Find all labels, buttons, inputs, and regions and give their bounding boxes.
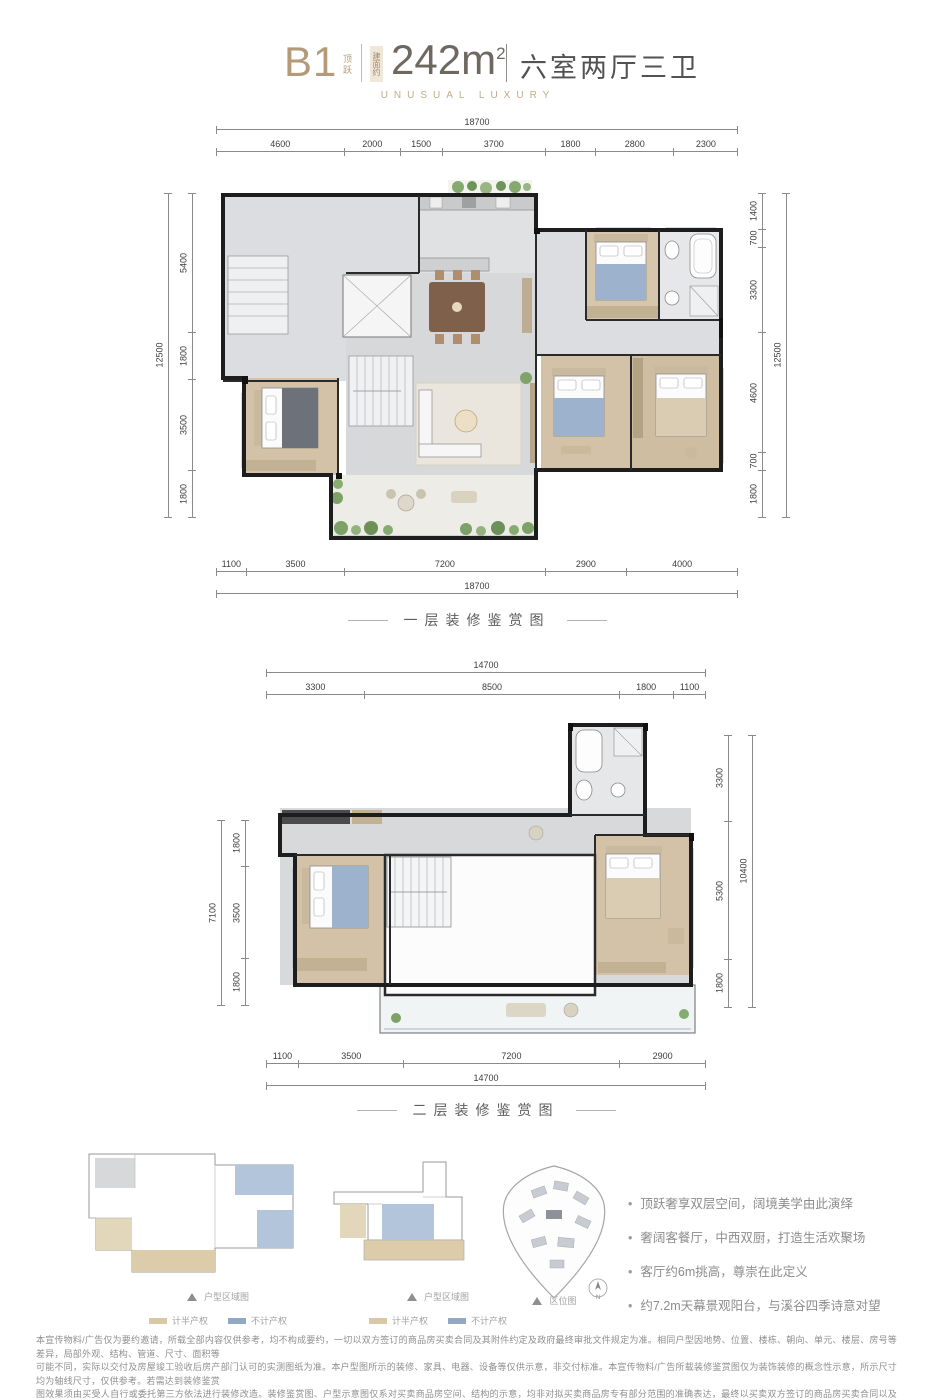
dim-label: 1100 [222,560,241,569]
dim-label: 8500 [482,683,502,692]
dim-label: 1800 [715,973,724,993]
highlight-item: 奢阔客餐厅，中西双厨，打造生活欢聚场 [628,1230,928,1247]
dim-label: 2800 [625,140,645,149]
legend-swatch [369,1318,387,1324]
dim-segment: 7200 [344,554,545,576]
dim-label: 14700 [473,661,498,670]
area-value: 242m2 [391,36,506,84]
dim-segment: 3300 [710,735,732,821]
legend-item: 不计产权 [448,1314,507,1327]
dim-total: 10400 [734,735,756,1007]
dim-label: 12500 [155,342,164,367]
dim-total: 18700 [216,112,738,134]
dim-segment: 8500 [365,677,619,699]
area-superscript: 2 [496,44,505,63]
dim-total-row: 18700 [216,112,738,134]
dim-segment-row: 3300850018001100 [266,677,706,699]
dim-label: 10400 [739,858,748,883]
dim-label: 14700 [473,1074,498,1083]
highlight-list: 顶跃奢享双层空间，阔境美学由此演绎奢阔客餐厅，中西双厨，打造生活欢聚场客厅约6m… [628,1196,928,1332]
floor1-dim-top: 187004600200015003700180028002300 [216,112,738,156]
dim-segment: 3500 [299,1046,404,1068]
disclaimer-line: 图效果须由买受人自行或委托第三方依法进行装修改造。装修鉴赏图、户型示意图仅系对买… [36,1388,897,1400]
dim-segment: 3500 [174,380,196,471]
plan1-ownership-legend: 计半产权不计产权 [128,1314,308,1327]
dim-segment: 1800 [710,960,732,1007]
dim-total-column: 7100 [203,820,225,1005]
dim-segment: 5300 [710,821,732,960]
dim-total: 14700 [266,1068,706,1090]
dim-total-row: 18700 [216,576,738,598]
unit-name: B1 [284,38,337,86]
legend-swatch [228,1318,246,1324]
dim-label: 2300 [696,140,716,149]
dim-segment: 1100 [673,677,706,699]
plan2-legend-label: 户型区域图 [424,1290,469,1303]
legend-label: 计半产权 [172,1314,208,1327]
dim-total-row: 14700 [266,1068,706,1090]
site-plan-thumbnail: N [492,1160,617,1305]
dim-segment: 1800 [744,470,766,517]
dim-label: 2900 [653,1052,673,1061]
dim-total: 12500 [768,193,790,517]
floor2-dim-right: 33005300180010400 [710,735,756,1007]
dim-segment: 1800 [227,820,249,867]
dim-label: 1800 [749,484,758,504]
dim-segment: 4600 [744,333,766,452]
header-divider-2 [506,44,507,82]
plan1-legend-title: 户型区域图 [128,1290,308,1303]
dim-segment: 3300 [744,247,766,333]
dim-total: 12500 [150,193,172,517]
site-legend: 区位图 [492,1294,617,1307]
dim-segment: 3500 [227,867,249,958]
dim-label: 1800 [179,346,188,366]
floor2-stairs [387,857,451,927]
area-badge: 建面约 [370,46,383,82]
dim-segment: 1800 [174,470,196,517]
floor1-plan [216,178,738,550]
site-legend-title: 区位图 [492,1294,617,1307]
dim-total-column: 12500 [768,193,790,517]
dim-label: 5400 [179,253,188,273]
dim-label: 1100 [273,1052,292,1061]
floor1-caption: 一层装修鉴赏图 [216,610,738,630]
triangle-marker-icon [187,1293,197,1301]
dim-segment: 4600 [216,134,344,156]
dim-label: 2000 [362,140,382,149]
highlight-item: 顶跃奢享双层空间，阔境美学由此演绎 [628,1196,928,1213]
triangle-marker-icon [532,1297,542,1305]
dim-segment: 2900 [619,1046,706,1068]
mid-stairs [349,356,413,426]
dim-segment-row: 11003500720029004000 [216,554,738,576]
dim-label: 12500 [773,342,782,367]
area-number: 242m [391,36,496,83]
dim-label: 700 [749,231,758,246]
dim-segment: 1100 [216,554,247,576]
living-set [416,372,535,465]
floor1-dim-bottom: 1100350072002900400018700 [216,554,738,598]
dim-label: 3300 [749,280,758,300]
dim-label: 1800 [232,972,241,992]
dim-label: 1800 [232,833,241,853]
dim-segment-column: 1400700330046007001800 [744,193,766,517]
dim-segment: 700 [744,229,766,247]
plan2-ownership-legend: 计半产权不计产权 [348,1314,528,1327]
dim-segment: 3700 [442,134,545,156]
site-legend-label: 区位图 [549,1294,576,1307]
dim-segment: 1100 [266,1046,299,1068]
dim-label: 3700 [484,140,504,149]
dim-segment: 2800 [596,134,674,156]
dim-segment-column: 5400180035001800 [174,193,196,517]
highlight-item: 约7.2m天幕景观阳台，与溪谷四季诗意对望 [628,1298,928,1315]
dim-segment: 3300 [266,677,365,699]
dim-segment: 4000 [626,554,738,576]
floor2-dim-top: 147003300850018001100 [266,655,706,699]
dim-segment: 7200 [404,1046,620,1068]
dim-label: 1800 [636,683,656,692]
dim-total: 7100 [203,820,225,1005]
legend-swatch [149,1318,167,1324]
dim-segment-row: 4600200015003700180028002300 [216,134,738,156]
layout-text: 六室两厅三卫 [520,46,700,85]
legend-label: 不计产权 [471,1314,507,1327]
dim-label: 5300 [715,881,724,901]
plan1-legend: 户型区域图 计半产权不计产权 [128,1290,308,1327]
legend-item: 计半产权 [149,1314,208,1327]
floor2-thumbnail [328,1152,478,1280]
floor1-rooms [223,180,721,538]
dim-segment: 2900 [545,554,626,576]
dim-segment: 5400 [174,193,196,333]
disclaimer-line: 可能不同，实际以交付及房屋竣工验收后房产部门认可的实测图纸为准。本户型图所示的装… [36,1361,897,1388]
floor2-dim-left: 7100180035001800 [203,820,249,1005]
dim-label: 3500 [232,902,241,922]
dim-label: 2900 [576,560,596,569]
dim-total-column: 12500 [150,193,172,517]
dim-label: 3500 [179,415,188,435]
floor1-dim-left: 125005400180035001800 [150,193,196,517]
dim-label: 7200 [435,560,455,569]
dim-segment: 2000 [344,134,400,156]
dim-label: 1100 [680,683,699,692]
floor1-dim-right: 140070033004600700180012500 [744,193,790,517]
dim-segment: 1800 [619,677,673,699]
dim-segment: 1800 [174,333,196,380]
dim-segment: 1400 [744,193,766,229]
dim-segment: 1800 [227,958,249,1005]
dim-total-column: 10400 [734,735,756,1007]
floor1-thumbnail [85,1148,300,1280]
dim-total: 14700 [266,655,706,677]
legend-item: 计半产权 [369,1314,428,1327]
dim-label: 18700 [464,118,489,127]
dim-segment: 3500 [247,554,345,576]
dim-label: 3500 [286,560,306,569]
dim-segment: 700 [744,452,766,470]
floor2-plan [266,718,706,1038]
plan1-legend-label: 户型区域图 [204,1290,249,1303]
legend-item: 不计产权 [228,1314,287,1327]
floor2-caption: 二层装修鉴赏图 [266,1100,706,1120]
floorplan-poster: B1 顶跃 建面约 242m2 六室两厅三卫 UNUSUAL LUXURY 18… [0,0,933,1400]
disclaimer-line: 本宣传物料/广告仅为要约邀请，所载全部内容仅供参考，均不构成要约，一切以双方签订… [36,1334,897,1361]
dim-label: 3500 [341,1052,361,1061]
dim-label: 1800 [179,484,188,504]
dim-label: 4000 [672,560,692,569]
dim-label: 1800 [561,140,581,149]
disclaimer: 本宣传物料/广告仅为要约邀请，所载全部内容仅供参考，均不构成要约，一切以双方签订… [36,1334,897,1400]
dim-segment-row: 1100350072002900 [266,1046,706,1068]
legend-label: 不计产权 [251,1314,287,1327]
dim-label: 7200 [501,1052,521,1061]
dim-segment-column: 180035001800 [227,820,249,1005]
dim-segment: 1500 [400,134,442,156]
triangle-marker-icon [407,1293,417,1301]
dim-segment-column: 330053001800 [710,735,732,1007]
tagline: UNUSUAL LUXURY [378,90,558,101]
legend-swatch [448,1318,466,1324]
dim-label: 7100 [208,902,217,922]
dim-label: 3300 [715,768,724,788]
dim-total-row: 14700 [266,655,706,677]
dim-label: 700 [749,454,758,469]
header-divider-1 [361,44,362,82]
dim-segment: 1800 [545,134,595,156]
unit-tag: 顶跃 [341,54,354,76]
legend-label: 计半产权 [392,1314,428,1327]
dim-label: 4600 [749,383,758,403]
dim-segment: 2300 [674,134,738,156]
floor2-dim-bottom: 110035007200290014700 [266,1046,706,1090]
dim-label: 1500 [411,140,431,149]
dim-label: 18700 [464,582,489,591]
dim-label: 1400 [749,201,758,221]
dim-total: 18700 [216,576,738,598]
highlight-item: 客厅约6m挑高，尊崇在此定义 [628,1264,928,1281]
dim-label: 4600 [270,140,290,149]
dim-label: 3300 [305,683,325,692]
